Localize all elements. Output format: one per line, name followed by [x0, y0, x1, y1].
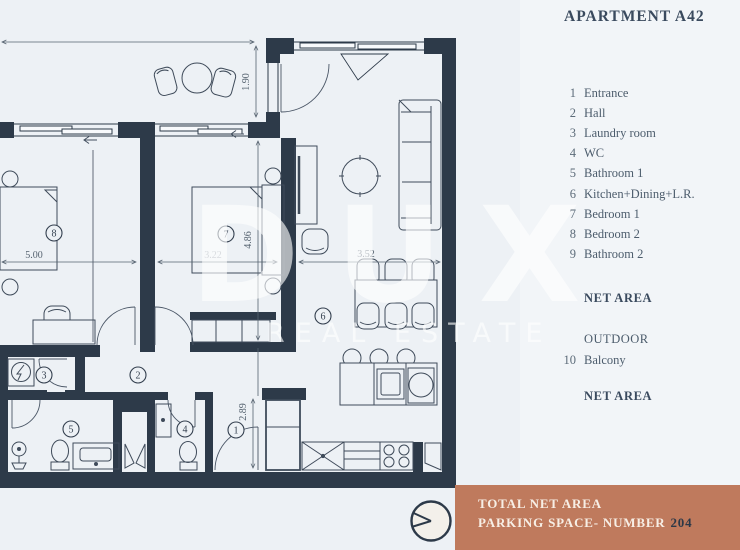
- outdoor-heading: OUTDOOR: [584, 332, 649, 347]
- legend-label: Bathroom 1: [584, 166, 643, 181]
- room-legend: 1 Entrance 2 Hall 3 Laundry room 4 WC 5 …: [540, 83, 736, 265]
- legend-number: 5: [540, 166, 576, 181]
- legend-label: Kitchen+Dining+L.R.: [584, 187, 695, 202]
- legend-item: 8 Bedroom 2: [540, 224, 736, 244]
- balcony-table-and-chairs: [153, 63, 237, 98]
- legend-item: 10 Balcony: [540, 350, 736, 370]
- room-number-text: 7: [224, 230, 229, 241]
- real-estate-floorplan-page: 1.90 5.00 3.22 4.86 3.52 2.89 8 7 6 2: [0, 0, 740, 550]
- dim-bedroom1-depth: 4.86: [243, 231, 254, 249]
- legend-item: 5 Bathroom 1: [540, 164, 736, 184]
- bedroom2-furniture: [0, 150, 95, 344]
- legend-item: 1 Entrance: [540, 83, 736, 103]
- legend-label: Bedroom 2: [584, 227, 640, 242]
- room-number-text: 1: [234, 426, 239, 437]
- kitchen-island: [340, 349, 437, 405]
- legend-number: 8: [540, 227, 576, 242]
- living-room-furniture: [295, 100, 441, 254]
- legend-number: 4: [540, 146, 576, 161]
- bathroom1-fixtures: [12, 440, 119, 470]
- legend-label: Entrance: [584, 86, 628, 101]
- legend-number: 7: [540, 207, 576, 222]
- room-number-badge: 5: [63, 421, 79, 437]
- dim-bedroom1-width: 3.22: [204, 250, 222, 261]
- windows: [14, 42, 424, 136]
- legend-number: 3: [540, 126, 576, 141]
- dim-entrance-depth: 2.89: [238, 403, 249, 421]
- compass-icon: [407, 497, 455, 545]
- wc-fixtures: [156, 404, 197, 470]
- room-number-text: 8: [52, 229, 57, 240]
- legend-item: 3 Laundry room: [540, 123, 736, 143]
- legend-number: 9: [540, 247, 576, 262]
- total-net-area-label: TOTAL NET AREA: [478, 494, 740, 513]
- room-number-text: 2: [136, 371, 141, 382]
- legend-number: 2: [540, 106, 576, 121]
- room-number-text: 5: [69, 425, 74, 436]
- room-number-text: 4: [183, 425, 188, 436]
- legend-item: 9 Bathroom 2: [540, 245, 736, 265]
- parking-label: PARKING SPACE- NUMBER: [478, 515, 665, 530]
- legend-label: Bathroom 2: [584, 247, 643, 262]
- room-number-badge: 1: [228, 422, 244, 438]
- legend-label: Laundry room: [584, 126, 656, 141]
- room-number-badge: 4: [177, 421, 193, 437]
- room-number-text: 3: [42, 371, 47, 382]
- room-number-badge: 2: [130, 367, 146, 383]
- dim-balcony-depth: 1.90: [241, 73, 252, 91]
- walls: [0, 38, 456, 488]
- page-title: APARTMENT A42: [564, 8, 705, 26]
- room-number-text: 6: [321, 312, 326, 323]
- dim-bedroom2-width: 5.00: [25, 250, 43, 261]
- footer-bar: TOTAL NET AREA PARKING SPACE- NUMBER204: [455, 485, 740, 550]
- washing-machine: [8, 359, 34, 386]
- legend-number: 1: [540, 86, 576, 101]
- hall-closet: [125, 444, 145, 468]
- floor-plan: 1.90 5.00 3.22 4.86 3.52 2.89 8 7 6 2: [0, 0, 470, 500]
- legend-item: 6 Kitchen+Dining+L.R.: [540, 184, 736, 204]
- dim-living-width: 3.52: [357, 249, 375, 260]
- legend-item: 2 Hall: [540, 103, 736, 123]
- legend-label: Bedroom 1: [584, 207, 640, 222]
- legend-number: 6: [540, 187, 576, 202]
- legend-label: WC: [584, 146, 604, 161]
- parking-number: 204: [670, 515, 692, 530]
- room-number-badge: 6: [315, 308, 331, 324]
- legend-item: 4 WC: [540, 144, 736, 164]
- room-number-badge: 8: [46, 225, 62, 241]
- parking-line: PARKING SPACE- NUMBER204: [478, 513, 740, 532]
- legend-item: 7 Bedroom 1: [540, 204, 736, 224]
- dining-table-and-chairs: [355, 259, 437, 329]
- outdoor-legend: 10 Balcony: [540, 350, 736, 370]
- legend-label: Hall: [584, 106, 606, 121]
- net-area-heading-2: NET AREA: [584, 389, 652, 404]
- legend-number: 10: [540, 353, 576, 368]
- legend-label: Balcony: [584, 353, 626, 368]
- room-number-badge: 7: [218, 226, 234, 242]
- net-area-heading: NET AREA: [584, 291, 652, 306]
- room-number-badge: 3: [36, 367, 52, 383]
